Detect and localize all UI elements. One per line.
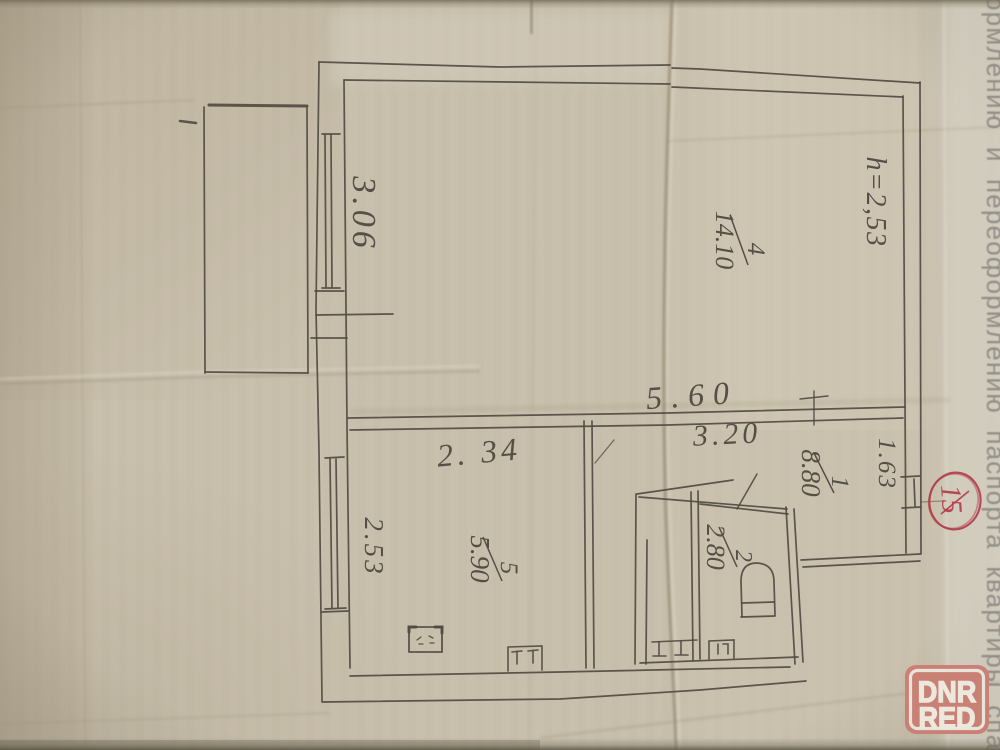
svg-text:2. 34: 2. 34 [436, 430, 523, 473]
svg-text:8.80: 8.80 [796, 449, 826, 497]
svg-text:2.80: 2.80 [701, 524, 730, 570]
svg-text:3.06: 3.06 [345, 175, 382, 252]
svg-text:2.53: 2.53 [359, 517, 389, 576]
svg-text:h=2,53: h=2,53 [860, 157, 891, 248]
svg-text:1.63: 1.63 [873, 438, 900, 490]
svg-text:15: 15 [934, 483, 968, 514]
svg-text:3.20: 3.20 [691, 416, 762, 453]
svg-text:5.90: 5.90 [465, 535, 495, 583]
svg-text:5.60: 5.60 [645, 374, 739, 416]
svg-text:RED: RED [919, 702, 976, 736]
svg-text:ормлению и переоформлению пасп: ормлению и переоформлению паспорта кварт… [981, 0, 1000, 750]
svg-text:4: 4 [742, 243, 769, 256]
svg-text:14.10: 14.10 [710, 211, 739, 270]
